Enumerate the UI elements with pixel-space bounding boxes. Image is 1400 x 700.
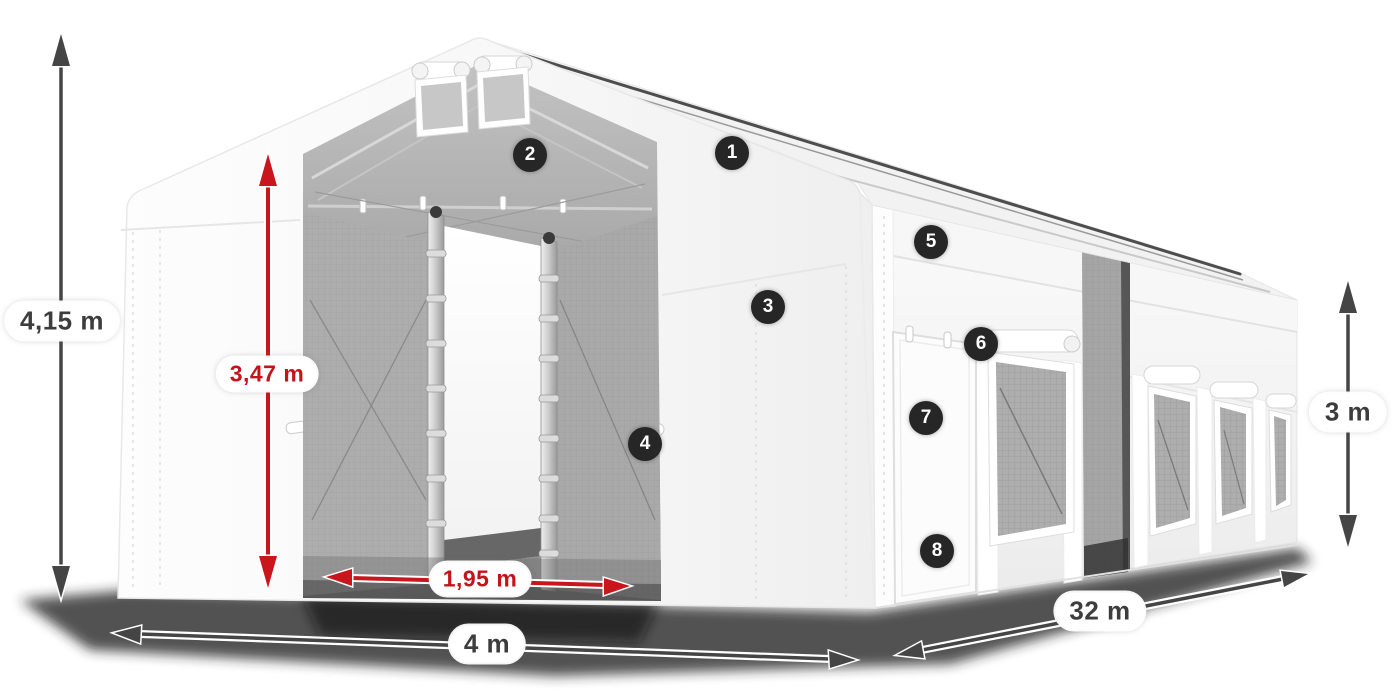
through-opening [444, 226, 541, 568]
dimension-label-entrance-width: 1,95 m [431, 563, 530, 596]
dimension-label-side-height: 3 m [1311, 394, 1385, 431]
callout-badge-8: 8 [920, 534, 954, 568]
inner-frame-pole-left [426, 206, 446, 586]
callout-badge-6: 6 [964, 327, 998, 361]
dimension-label-total-height: 4,15 m [6, 303, 118, 340]
vent-window-right [483, 74, 525, 122]
side-window-1 [982, 330, 1080, 546]
vent-window-left [421, 82, 463, 130]
open-side-section [1082, 250, 1130, 578]
tent-product-diagram: 4,15 m 3,47 m 1,95 m 4 m 32 m 3 m 1 2 3 … [0, 0, 1400, 700]
callout-badge-4: 4 [628, 427, 662, 461]
dimension-label-entrance-height: 3,47 m [218, 358, 317, 391]
callout-badge-5: 5 [914, 225, 948, 259]
dimension-label-length: 32 m [1055, 593, 1144, 630]
inner-frame-pole-right [539, 232, 559, 592]
callout-badge-7: 7 [909, 401, 943, 435]
entrance-opening [303, 66, 661, 601]
tent-illustration [0, 0, 1400, 700]
interior-mesh-left [303, 212, 428, 596]
interior-mesh-right [557, 216, 661, 600]
callout-badge-2: 2 [513, 138, 547, 172]
dimension-label-front-width: 4 m [450, 626, 524, 663]
callout-badge-3: 3 [751, 290, 785, 324]
callout-badge-1: 1 [715, 136, 749, 170]
